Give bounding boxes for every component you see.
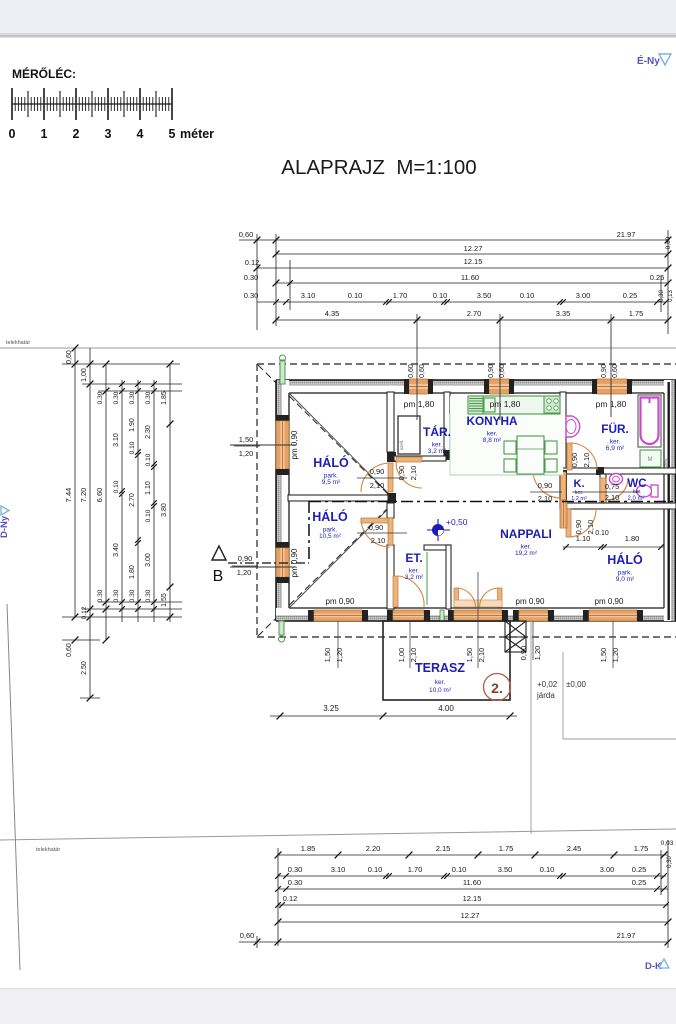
svg-text:10,0 m²: 10,0 m²	[429, 687, 452, 694]
svg-text:0,30: 0,30	[659, 290, 665, 302]
svg-text:0,03: 0,03	[661, 840, 674, 847]
svg-text:2.: 2.	[491, 680, 503, 696]
svg-text:pm 1,80: pm 1,80	[490, 399, 521, 409]
svg-text:0.30: 0.30	[113, 589, 120, 602]
svg-text:0,60: 0,60	[665, 236, 672, 249]
svg-text:1.10: 1.10	[576, 534, 591, 543]
svg-text:0.10: 0.10	[452, 865, 467, 874]
svg-text:3.35: 3.35	[556, 309, 571, 318]
svg-text:HÁLÓ: HÁLÓ	[607, 552, 643, 567]
svg-text:3,2 m²: 3,2 m²	[428, 448, 447, 455]
svg-text:1,00: 1,00	[397, 648, 406, 663]
svg-text:0,90: 0,90	[538, 481, 553, 490]
svg-text:3.00: 3.00	[145, 553, 152, 567]
svg-text:12.15: 12.15	[464, 257, 483, 266]
svg-text:3.25: 3.25	[323, 704, 339, 713]
svg-text:TÁR.: TÁR.	[423, 424, 451, 439]
svg-text:pm 1,80: pm 1,80	[404, 399, 435, 409]
svg-text:0.30: 0.30	[97, 391, 104, 404]
svg-text:pm 0,90: pm 0,90	[326, 597, 355, 606]
svg-text:D-Ny: D-Ny	[0, 515, 10, 538]
svg-text:0.30: 0.30	[244, 291, 259, 300]
svg-text:szell.: szell.	[663, 458, 668, 468]
svg-text:2,10: 2,10	[586, 520, 595, 535]
svg-text:1,00: 1,00	[81, 368, 88, 382]
svg-text:pm 0,90: pm 0,90	[290, 548, 299, 577]
svg-text:0.30: 0.30	[288, 878, 303, 887]
svg-text:0.25: 0.25	[623, 291, 638, 300]
svg-text:3,2 m²: 3,2 m²	[405, 574, 424, 581]
svg-text:1.55: 1.55	[161, 593, 168, 607]
svg-text:2,10: 2,10	[409, 648, 418, 663]
svg-text:pm 0,90: pm 0,90	[516, 597, 545, 606]
svg-text:ET.: ET.	[405, 551, 422, 565]
svg-text:±0,00: ±0,00	[566, 680, 587, 689]
svg-text:+0,02: +0,02	[537, 680, 558, 689]
svg-text:NAPPALI: NAPPALI	[500, 527, 552, 541]
svg-text:1,20: 1,20	[237, 568, 252, 577]
svg-text:3.50: 3.50	[477, 291, 492, 300]
svg-text:3.00: 3.00	[576, 291, 591, 300]
svg-text:0,75: 0,75	[605, 482, 620, 491]
svg-text:3.40: 3.40	[113, 543, 120, 557]
svg-text:2.50: 2.50	[81, 661, 88, 675]
svg-text:0,60: 0,60	[66, 643, 73, 657]
svg-text:2.15: 2.15	[436, 844, 451, 853]
svg-text:0,90: 0,90	[369, 523, 384, 532]
svg-text:HÁLÓ: HÁLÓ	[313, 455, 349, 470]
svg-text:FÜR.: FÜR.	[601, 422, 629, 436]
svg-text:1,20: 1,20	[533, 646, 542, 661]
svg-text:0,30: 0,30	[667, 856, 673, 868]
svg-text:K.: K.	[574, 478, 585, 490]
svg-text:21.97: 21.97	[617, 931, 636, 940]
svg-text:7.44: 7.44	[64, 488, 73, 503]
svg-text:1.75: 1.75	[634, 844, 649, 853]
svg-text:MÉRŐLÉC:: MÉRŐLÉC:	[12, 66, 76, 81]
svg-text:0.12: 0.12	[245, 258, 260, 267]
svg-text:0,60: 0,60	[408, 364, 415, 378]
svg-text:12.15: 12.15	[463, 894, 482, 903]
svg-text:4: 4	[137, 127, 144, 141]
svg-text:0.30: 0.30	[129, 589, 136, 602]
svg-text:12.27: 12.27	[464, 244, 483, 253]
svg-text:0.30: 0.30	[244, 273, 259, 282]
svg-text:2.70: 2.70	[467, 309, 482, 318]
svg-text:É-Ny: É-Ny	[637, 54, 660, 67]
svg-text:3.10: 3.10	[301, 291, 316, 300]
svg-text:1.75: 1.75	[499, 844, 514, 853]
svg-text:ker.: ker.	[435, 679, 446, 686]
svg-text:1,50: 1,50	[599, 648, 608, 663]
svg-text:1,50: 1,50	[465, 648, 474, 663]
svg-text:méter: méter	[180, 127, 214, 141]
svg-text:0.10: 0.10	[348, 291, 363, 300]
svg-text:1.70: 1.70	[393, 291, 408, 300]
svg-text:7.20: 7.20	[79, 488, 88, 503]
svg-text:KONYHA: KONYHA	[466, 414, 518, 428]
svg-text:2,10: 2,10	[582, 453, 591, 468]
svg-text:3.10: 3.10	[331, 865, 346, 874]
svg-text:pm 0,90: pm 0,90	[595, 597, 624, 606]
svg-text:szell.: szell.	[399, 440, 404, 450]
svg-text:1.80: 1.80	[625, 534, 640, 543]
svg-text:2,10: 2,10	[409, 466, 418, 481]
svg-text:0.10: 0.10	[595, 530, 609, 537]
svg-text:1,20: 1,20	[335, 648, 344, 663]
svg-text:2.20: 2.20	[366, 844, 381, 853]
svg-text:0.10: 0.10	[145, 509, 152, 522]
svg-text:1: 1	[41, 127, 48, 141]
svg-text:2.30: 2.30	[145, 425, 152, 439]
svg-text:1.75: 1.75	[629, 309, 644, 318]
svg-text:1,2 m²: 1,2 m²	[571, 496, 587, 502]
svg-text:telekhatár: telekhatár	[36, 847, 60, 853]
svg-text:1,50: 1,50	[323, 648, 332, 663]
svg-text:2,10: 2,10	[538, 494, 553, 503]
svg-text:járda: járda	[536, 691, 555, 700]
svg-text:0,60: 0,60	[239, 230, 254, 239]
svg-text:0.30: 0.30	[288, 865, 303, 874]
svg-text:0.10: 0.10	[433, 291, 448, 300]
svg-text:B: B	[213, 568, 224, 585]
svg-text:0,90: 0,90	[238, 554, 253, 563]
svg-text:1.70: 1.70	[408, 865, 423, 874]
svg-text:10,5 m²: 10,5 m²	[319, 533, 342, 540]
svg-text:1.90: 1.90	[129, 418, 136, 432]
svg-text:2.70: 2.70	[129, 493, 136, 507]
svg-text:3.80: 3.80	[161, 503, 168, 517]
svg-text:2,10: 2,10	[371, 536, 386, 545]
svg-text:0.25: 0.25	[632, 865, 647, 874]
svg-text:0,90: 0,90	[570, 453, 579, 468]
svg-text:3.00: 3.00	[600, 865, 615, 874]
svg-text:9,0 m²: 9,0 m²	[616, 576, 635, 583]
svg-text:8,8 m²: 8,8 m²	[483, 437, 502, 444]
svg-text:1,20: 1,20	[239, 449, 254, 458]
svg-text:0.10: 0.10	[520, 291, 535, 300]
svg-text:1,50: 1,50	[239, 435, 254, 444]
svg-text:0.30: 0.30	[113, 391, 120, 404]
svg-text:0.10: 0.10	[113, 480, 120, 493]
svg-text:0.25: 0.25	[632, 878, 647, 887]
svg-text:1.80: 1.80	[129, 565, 136, 579]
svg-text:0,60: 0,60	[612, 364, 619, 378]
svg-text:0.30: 0.30	[97, 589, 104, 602]
svg-text:19,2 m²: 19,2 m²	[515, 550, 538, 557]
svg-text:3.10: 3.10	[113, 433, 120, 447]
svg-text:2.45: 2.45	[567, 844, 582, 853]
svg-text:4.35: 4.35	[325, 309, 340, 318]
svg-text:0.30: 0.30	[145, 589, 152, 602]
svg-text:0.10: 0.10	[145, 453, 152, 466]
svg-text:1,20: 1,20	[611, 648, 620, 663]
svg-text:ALAPRAJZ M=1:100: ALAPRAJZ M=1:100	[281, 156, 476, 179]
svg-text:6.60: 6.60	[95, 488, 104, 503]
svg-text:0.12: 0.12	[283, 894, 298, 903]
svg-text:M: M	[648, 457, 653, 463]
svg-text:2,10: 2,10	[370, 481, 385, 490]
svg-text:5: 5	[169, 127, 176, 141]
svg-text:0,90: 0,90	[488, 364, 495, 378]
svg-text:0.10: 0.10	[540, 865, 555, 874]
svg-text:11.60: 11.60	[461, 273, 479, 282]
svg-text:0,13: 0,13	[668, 290, 674, 302]
svg-text:2,10: 2,10	[477, 648, 486, 663]
svg-text:0: 0	[9, 127, 16, 141]
svg-text:1.10: 1.10	[145, 481, 152, 495]
svg-text:3: 3	[105, 127, 112, 141]
svg-text:2,10: 2,10	[605, 493, 620, 502]
svg-text:1.85: 1.85	[301, 844, 316, 853]
svg-text:1.85: 1.85	[161, 391, 168, 405]
svg-text:+0,50: +0,50	[446, 517, 468, 527]
svg-text:0,60: 0,60	[66, 350, 73, 364]
svg-text:4.00: 4.00	[438, 704, 454, 713]
svg-text:6,9 m²: 6,9 m²	[606, 445, 625, 452]
svg-text:0,60: 0,60	[499, 364, 506, 378]
svg-text:0,60: 0,60	[240, 931, 255, 940]
svg-text:0.25: 0.25	[650, 273, 665, 282]
svg-text:9,5 m²: 9,5 m²	[322, 479, 341, 486]
svg-text:11.60: 11.60	[463, 878, 481, 887]
svg-text:0.12: 0.12	[81, 606, 88, 619]
svg-text:0,90: 0,90	[370, 467, 385, 476]
svg-text:12.27: 12.27	[461, 911, 480, 920]
svg-text:0,90: 0,90	[519, 646, 528, 661]
svg-text:0,90: 0,90	[574, 520, 583, 535]
svg-text:TERASZ: TERASZ	[415, 661, 465, 675]
svg-text:2,0 m²: 2,0 m²	[627, 496, 644, 502]
svg-text:0,90: 0,90	[397, 466, 406, 481]
svg-text:0,60: 0,60	[419, 364, 426, 378]
svg-text:telekhatár: telekhatár	[6, 340, 30, 346]
svg-text:0.10: 0.10	[129, 441, 136, 454]
svg-text:0,90: 0,90	[601, 364, 608, 378]
svg-text:0.30: 0.30	[129, 391, 136, 404]
svg-text:3.50: 3.50	[498, 865, 513, 874]
svg-text:HÁLÓ: HÁLÓ	[312, 509, 348, 524]
svg-text:0.10: 0.10	[368, 865, 383, 874]
svg-text:2: 2	[73, 127, 80, 141]
svg-text:21.97: 21.97	[617, 230, 636, 239]
svg-text:0.30: 0.30	[145, 391, 152, 404]
